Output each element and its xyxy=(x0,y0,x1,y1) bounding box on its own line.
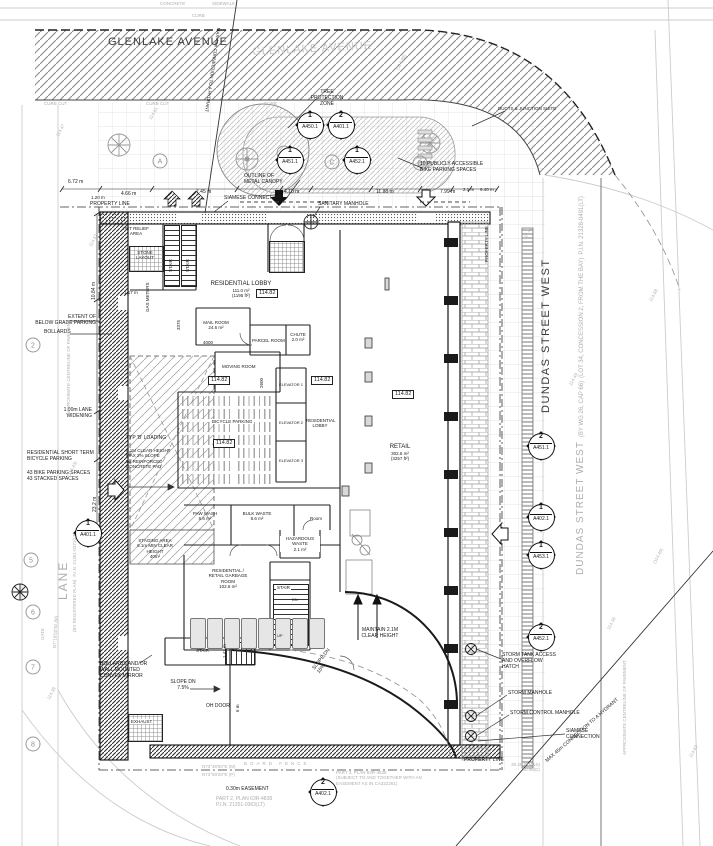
bulk-area: 8.6 m² xyxy=(240,516,274,521)
part2-note: PART 2, PLAN 63R-4838P.I.N. 21351-0363(L… xyxy=(216,797,272,809)
garbage-bin xyxy=(309,618,325,649)
tree-protection-note: TREEPROTECTIONZONE xyxy=(306,90,348,108)
room-garbage: RESIDENTIAL /RETAIL GARBAGEROOM102.6 m² xyxy=(200,568,256,589)
bike43-line2: 43 STACKED SPACES xyxy=(27,477,90,483)
mirror-line3: CONVEX MIRROR xyxy=(100,674,147,680)
approx-centreline-east: APPROXIMATE CENTRELINE OF PAVEMENT xyxy=(622,660,627,755)
mail-area: 24.6 m² xyxy=(198,325,234,330)
retail-name: RETAIL xyxy=(382,444,418,451)
oh-door-note: OH DOOR xyxy=(206,704,230,710)
site-plan-drawing: A C D 2 5 6 7 8 GLENLAKE AVENUE GLENLAKE… xyxy=(0,0,713,846)
marker-sheet: A451.1 xyxy=(279,157,301,165)
bearing-p-note: N73°50'20"E (P) xyxy=(202,772,235,777)
north-door-gap-2 xyxy=(266,213,306,223)
road-edge-continuation xyxy=(615,175,680,290)
dim-410: 4.10 m xyxy=(284,190,299,196)
room-stone-layout: STONELAYOUT xyxy=(131,250,159,261)
section-marker-a402.1-1: 1A402.1 xyxy=(524,500,558,534)
dim-147: 1.47 m xyxy=(222,644,227,658)
marker-sheet: A452.1 xyxy=(530,634,552,642)
typ-b-loading-note: TYP 'B' LOADING xyxy=(126,436,166,442)
marker-number: 2 xyxy=(524,624,558,631)
stair-label-south: STAIR xyxy=(196,648,209,653)
garbage-bin xyxy=(292,618,308,649)
dist3048-line2: 30.48(D) xyxy=(490,767,540,772)
slope-75-note: SLOPE DN7.5% xyxy=(168,680,198,692)
garbage-line4: 102.6 m² xyxy=(200,584,256,589)
room-residential-lobby-2: RESIDENTIALLOBBY xyxy=(306,418,334,429)
marker-number: 1 xyxy=(293,112,327,119)
room-elevator-3: ELEVATOR 3 xyxy=(279,459,303,464)
stair-label-nw1: STAIR xyxy=(168,259,173,272)
dim-672: 6.72 m xyxy=(68,180,83,186)
storm-control-manhole-note: STORM CONTROL MANHOLE xyxy=(510,711,580,717)
svg-text:A: A xyxy=(158,159,163,166)
pet-line2: AREA xyxy=(122,231,150,236)
paw-area: 6.6 m² xyxy=(190,516,220,521)
storm-hatch-line3: HATCH xyxy=(502,665,556,671)
svg-text:6: 6 xyxy=(31,610,35,617)
north-door-gap-1 xyxy=(176,213,202,223)
marker-sheet: A451.1 xyxy=(530,443,552,451)
staging-line2: 6.1m MIN CLEAR xyxy=(133,543,177,548)
part3-line3: EASEMENT AS IN CA322261) xyxy=(336,781,422,786)
elevation-box-moving: 114.82 xyxy=(208,376,230,385)
section-marker-a451.1-1: 1A451.1 xyxy=(273,143,307,177)
room-bicycle-parking: BICYCLE PARKING xyxy=(210,419,254,424)
marker-number: 2 xyxy=(524,433,558,440)
property-line-note-top: PROPERTY LINE xyxy=(90,202,130,208)
tpz-line3: ZONE xyxy=(306,102,348,108)
maintain-clear-note: MAINTAIN 2.1MCLEAR HEIGHT xyxy=(358,628,402,640)
ramp-inner-arc xyxy=(345,592,457,704)
storm-hatch-note: STORM TANK ACCESSAND OVERFLOWHATCH xyxy=(502,653,556,671)
extent-note: EXTENT OFBELOW GRADE PARKING xyxy=(28,315,96,327)
section-marker-a450.1-1: 1A450.1 xyxy=(293,108,327,142)
typ-b-line4: CONCRETE PAD xyxy=(126,464,171,469)
north-door-gap-3 xyxy=(418,213,436,223)
dundas-legal-line1: DUNDAS STREET WEST xyxy=(575,441,587,575)
dist-3048-note: 30.48 (P,M&S)30.48(D) xyxy=(490,762,540,773)
easement-note: 0.30m EASEMENT xyxy=(226,787,269,793)
room-hazardous-waste: HAZARDOUSWASTE2.1 m² xyxy=(280,536,320,552)
section-marker-a452.1-2: 2A452.1 xyxy=(524,620,558,654)
grid-bubble-2: 2 xyxy=(26,338,40,352)
dn-label: DN xyxy=(292,598,298,603)
garbage-bin xyxy=(258,618,274,649)
section-marker-a402.1-2: 2A402.1 xyxy=(306,775,340,809)
dim-117: 1.17 m xyxy=(124,290,138,295)
bike10-line2: BIKE PARKING SPACES xyxy=(420,168,483,174)
svg-text:7: 7 xyxy=(31,665,35,672)
kitchenette-equipment xyxy=(346,510,372,594)
elevation-box-bicycle: 114.82 xyxy=(213,439,235,448)
stair-label-nw2: STAIR xyxy=(185,259,190,272)
west-wall-notch-2 xyxy=(118,386,129,400)
dundas-legal-line4: P.I.N. 21328-0491(LT) xyxy=(579,196,586,254)
dim-3375: 3375 xyxy=(176,320,181,330)
canopy-line2: METAL CANOPY xyxy=(244,180,283,186)
dundas-legal-line3: (LOT 34, CONCESSION 2, FROM THE BAY) xyxy=(579,258,586,378)
marker-sheet: A401.1 xyxy=(77,530,99,538)
tie-strip xyxy=(522,228,533,768)
room-paw-wash: PAW WASH6.6 m² xyxy=(190,511,220,522)
curb-cut-label-2: CURB CUT xyxy=(146,101,169,106)
short-term-bike-note: RESIDENTIAL SHORT TERMBICYCLE PARKING xyxy=(27,451,94,463)
marker-sheet: A453.1 xyxy=(530,552,552,560)
dim-120: 1.20 m xyxy=(91,195,105,200)
lobby2-line2: LOBBY xyxy=(306,423,334,428)
chute-area: 2.0 m² xyxy=(288,337,308,342)
lane-legal-line1: (BY REGISTERED PLAN) xyxy=(72,580,77,632)
marker-sheet: A401.1 xyxy=(330,122,352,130)
marker-sheet: A402.1 xyxy=(312,789,334,797)
short-term-line2: BICYCLE PARKING xyxy=(27,457,94,463)
maintain-line2: CLEAR HEIGHT xyxy=(358,634,402,640)
up-label: UP xyxy=(277,634,283,639)
storm-manhole-note: STORM MANHOLE xyxy=(508,691,552,697)
curb-label: CURB xyxy=(192,13,205,18)
section-marker-a452.1-1: 1A452.1 xyxy=(340,143,374,177)
gate-label: GATE xyxy=(40,628,45,640)
part2-line2: P.I.N. 21351-0363(LT) xyxy=(216,803,272,809)
marker-sheet: A452.1 xyxy=(346,157,368,165)
marker-number: 1 xyxy=(524,504,558,511)
dim-799: 7.99 m xyxy=(440,190,455,196)
lobby-name: RESIDENTIAL LOBBY xyxy=(206,281,276,288)
haz-line3: 2.1 m² xyxy=(280,547,320,552)
west-wall-notch-1 xyxy=(118,296,129,310)
typ-b-notes: 6.1M CLEAR HEIGHTMAX 2% SLOPEW/ REINFORC… xyxy=(126,448,171,469)
marker-sheet: A402.1 xyxy=(530,514,552,522)
room-bulk-waste: BULK WASTE8.6 m² xyxy=(240,511,274,522)
marker-sheet: A450.1 xyxy=(299,122,321,130)
dundas-legal-line2: (BY WG 26, CAP 66) xyxy=(579,381,586,437)
room-parcel: PARCEL ROOM xyxy=(252,338,285,343)
east-brick-band xyxy=(462,222,488,760)
street-name-glenlake: GLENLAKE AVENUE xyxy=(108,36,228,49)
marker-number: 1 xyxy=(71,520,105,527)
svg-text:5: 5 xyxy=(29,558,33,565)
marker-number: 1 xyxy=(340,147,374,154)
room-elevator-2: ELEVATOR 2 xyxy=(279,421,303,426)
stair-flight-nw-2 xyxy=(181,225,197,287)
room-elevator-1: ELEVATOR 1 xyxy=(279,383,303,388)
public-bike-note: 10 PUBLICLY ACCESSIBLEBIKE PARKING SPACE… xyxy=(420,162,483,174)
street-name-dundas: DUNDAS STREET WEST xyxy=(540,258,553,413)
curb-label-2: CURB xyxy=(264,101,277,106)
garbage-bin xyxy=(241,618,257,649)
elevation-box-lobby: 114.82 xyxy=(256,289,278,298)
dim-466: 4.66 m xyxy=(121,192,136,198)
west-wall-notch-3 xyxy=(118,636,129,650)
dim-745: 7.45 m xyxy=(196,190,211,196)
south-wall xyxy=(150,745,500,758)
dim-6m: 6 m xyxy=(235,704,240,712)
retail-area-ft: (3257 ft²) xyxy=(382,456,418,461)
sanitary-manhole-note: SANITARY MANHOLE xyxy=(318,202,369,208)
curb-cut-label-1: CURB CUT xyxy=(44,101,67,106)
marker-number: 1 xyxy=(273,147,307,154)
stone-line2: LAYOUT xyxy=(131,255,159,260)
bearing-m-note: N73°48'50"E (M) xyxy=(202,764,236,769)
svg-text:8: 8 xyxy=(31,742,35,749)
room-small: Room xyxy=(310,516,322,521)
dundas-legal-text: DUNDAS STREET WEST(BY WG 26, CAP 66)(LOT… xyxy=(575,196,587,575)
grid-bubble-6: 6 xyxy=(26,605,40,619)
section-marker-a401.1-1: 1A401.1 xyxy=(71,516,105,550)
marker-number: 1 xyxy=(524,542,558,549)
dim-2320: 23.2 m xyxy=(93,497,99,512)
room-mail: MAIL ROOM24.6 m² xyxy=(198,320,234,331)
ramp-outer-arc xyxy=(232,650,456,758)
section-marker-a451.1-2: 2A451.1 xyxy=(524,429,558,463)
board-fence-note: BOARD FENCE xyxy=(244,761,310,766)
grid-bubble-5: 5 xyxy=(24,553,38,567)
extent-line2: BELOW GRADE PARKING xyxy=(28,321,96,327)
entrance-mat xyxy=(269,241,305,273)
siamese-note-top: SIAMESE CONNECTION xyxy=(224,196,281,202)
bike43-note: 43 BIKE PARKING SPACES43 STACKED SPACES xyxy=(27,471,90,483)
bike-rack-block-east xyxy=(238,394,274,484)
room-pet-relief: PET RELIEFAREA xyxy=(122,226,150,237)
marker-number: 2 xyxy=(324,112,358,119)
part3-note: PART 3, PLAN 63R-4838(SUBJECT TO AND TOG… xyxy=(336,770,422,786)
dim-640: 6.40 m xyxy=(480,187,494,192)
concrete-label: CONCRETE xyxy=(160,1,185,6)
east-pavement-grid xyxy=(488,175,545,770)
grid-bubble-7: 7 xyxy=(26,660,40,674)
garbage-bin xyxy=(190,618,206,649)
staging-note: STAGING AREA6.1m MIN CLEARHEIGHT40m² xyxy=(133,538,177,559)
dim-21: 2.1 m xyxy=(463,187,474,192)
dim-2600: 2600 xyxy=(259,378,264,388)
gas-meters-label: GAS METERS xyxy=(145,282,150,312)
section-marker-a401.1-2: 2A401.1 xyxy=(324,108,358,142)
slope75-line2: 7.5% xyxy=(168,686,198,692)
elevation-box-retail: 114.82 xyxy=(392,390,414,399)
stair-label-center: STAIR xyxy=(276,585,291,590)
part3-line2: (SUBJECT TO AND TOGETHER WITH AN xyxy=(336,775,422,780)
dim-1084: 10.84 m xyxy=(92,282,98,300)
convex-mirror-note: BOLLARDS AND/ORWALL MOUNTEDCONVEX MIRROR xyxy=(100,662,147,680)
sidewalk-label: SIDEWALK xyxy=(212,1,235,6)
marker-number: 2 xyxy=(306,779,340,786)
room-moving: MOVING ROOM xyxy=(222,364,256,369)
stair-flight-nw-1 xyxy=(164,225,180,287)
staging-line4: 40m² xyxy=(133,554,177,559)
dim-4000: 4000 xyxy=(203,340,213,345)
section-marker-a453.1-1: 1A453.1 xyxy=(524,538,558,572)
property-line-note-east: PROPERTY LINE xyxy=(484,226,489,262)
elevation-box-corridor: 114.82 xyxy=(311,376,333,385)
grid-bubble-8: 8 xyxy=(26,737,40,751)
garbage-bin xyxy=(207,618,223,649)
room-retail: RETAIL302.6 m²(3257 ft²) xyxy=(382,444,418,462)
svg-text:2: 2 xyxy=(31,343,35,350)
retail-columns xyxy=(342,278,389,496)
approx-centreline-west: APPROXIMATE CENTRELINE OF PAVEMENT xyxy=(66,320,71,415)
room-chute: CHUTE2.0 m² xyxy=(288,332,308,343)
svg-text:C: C xyxy=(329,160,334,167)
dim-1198: 11.98 m xyxy=(376,190,394,196)
room-exhaust: EXHAUST xyxy=(130,719,153,724)
ducts-note: DUCTS & JUNCTION SUITE xyxy=(498,106,556,111)
lane-label: LANE xyxy=(56,561,70,600)
